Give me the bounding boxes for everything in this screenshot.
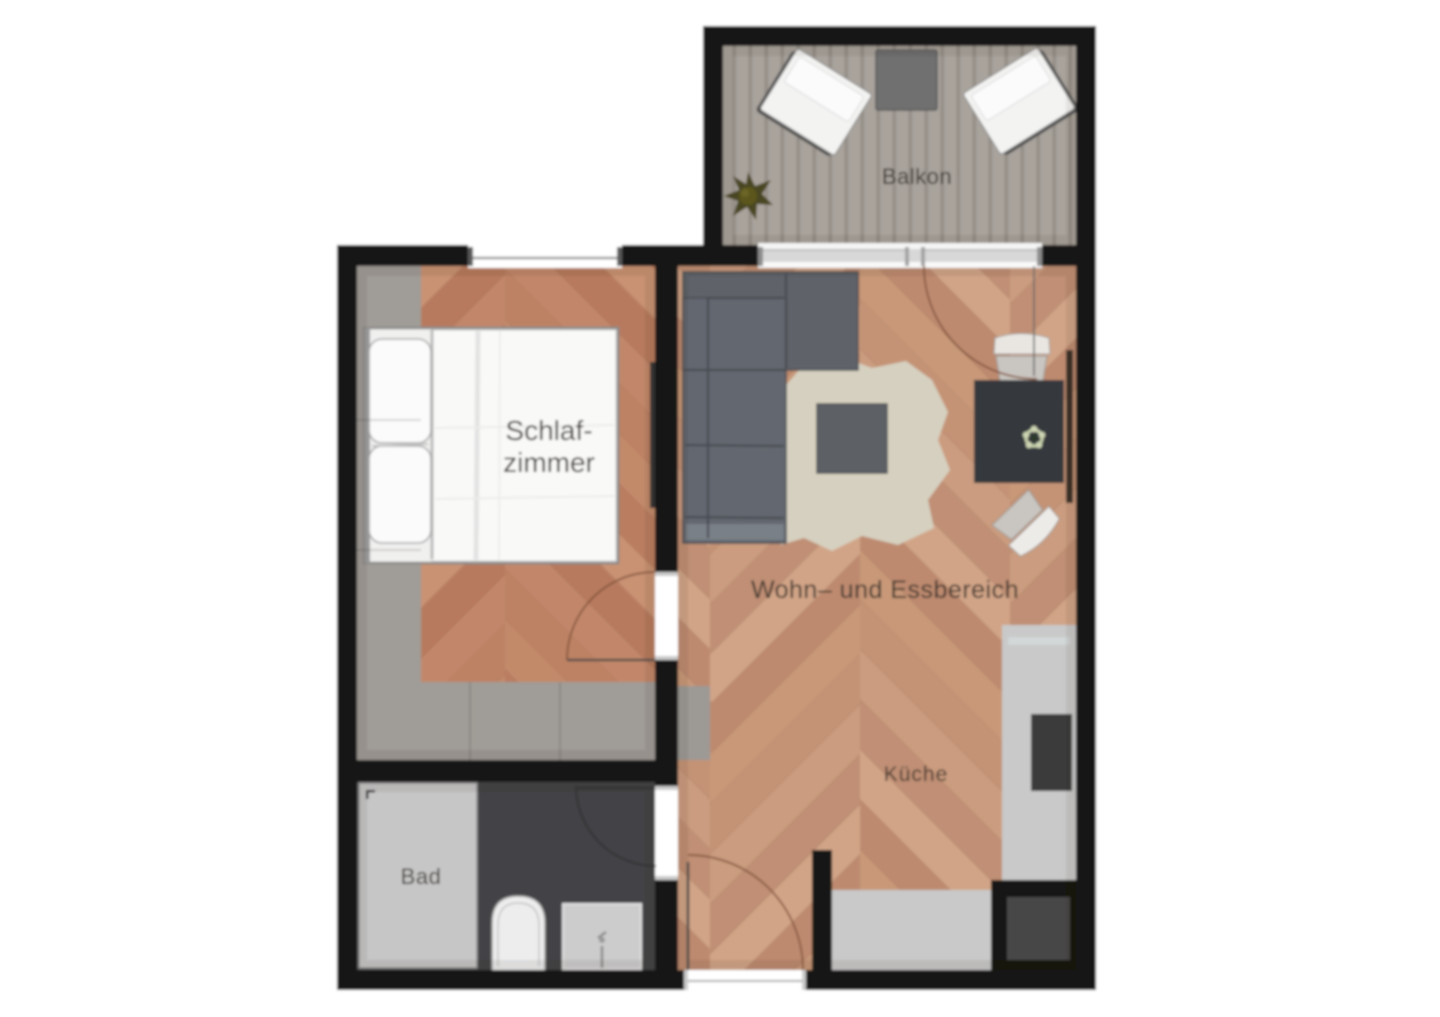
svg-text:Küche: Küche	[884, 763, 949, 786]
svg-text:Wohn– und Essbereich: Wohn– und Essbereich	[751, 576, 1019, 604]
svg-text:Balkon: Balkon	[882, 164, 952, 189]
svg-text:zimmer: zimmer	[503, 447, 595, 478]
svg-text:Schlaf-: Schlaf-	[505, 415, 592, 446]
svg-text:Bad: Bad	[401, 864, 442, 889]
